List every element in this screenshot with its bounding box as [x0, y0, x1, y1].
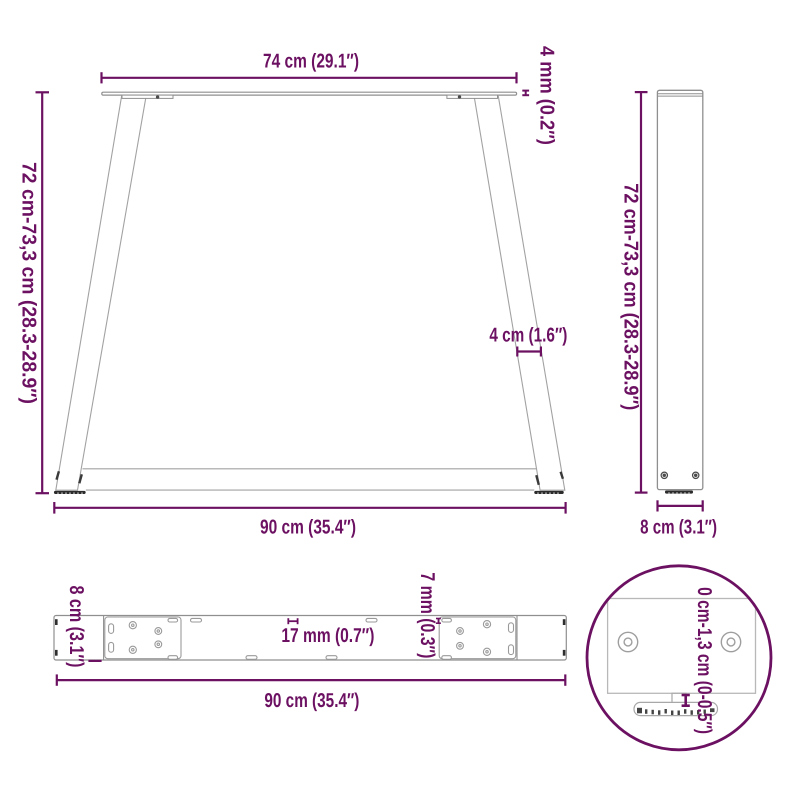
svg-text:17 mm (0.7″): 17 mm (0.7″) [281, 625, 374, 647]
svg-text:90 cm (35.4″): 90 cm (35.4″) [264, 690, 359, 712]
svg-text:74 cm (29.1″): 74 cm (29.1″) [263, 51, 359, 73]
svg-text:72 cm-73,3 cm (28.3-28.9″): 72 cm-73,3 cm (28.3-28.9″) [619, 183, 641, 410]
svg-text:8 cm (3.1″): 8 cm (3.1″) [640, 517, 717, 539]
svg-text:72 cm-73,3 cm (28.3-28.9″): 72 cm-73,3 cm (28.3-28.9″) [18, 162, 40, 404]
svg-text:7 mm (0.3″): 7 mm (0.3″) [416, 572, 438, 658]
svg-text:4 cm (1.6″): 4 cm (1.6″) [489, 325, 567, 347]
svg-text:4 mm (0.2″): 4 mm (0.2″) [535, 46, 557, 145]
svg-text:90 cm (35.4″): 90 cm (35.4″) [260, 516, 356, 538]
svg-text:8 cm (3.1″): 8 cm (3.1″) [65, 586, 87, 668]
svg-text:0 cm-1,3 cm (0-0.5″): 0 cm-1,3 cm (0-0.5″) [693, 587, 715, 734]
